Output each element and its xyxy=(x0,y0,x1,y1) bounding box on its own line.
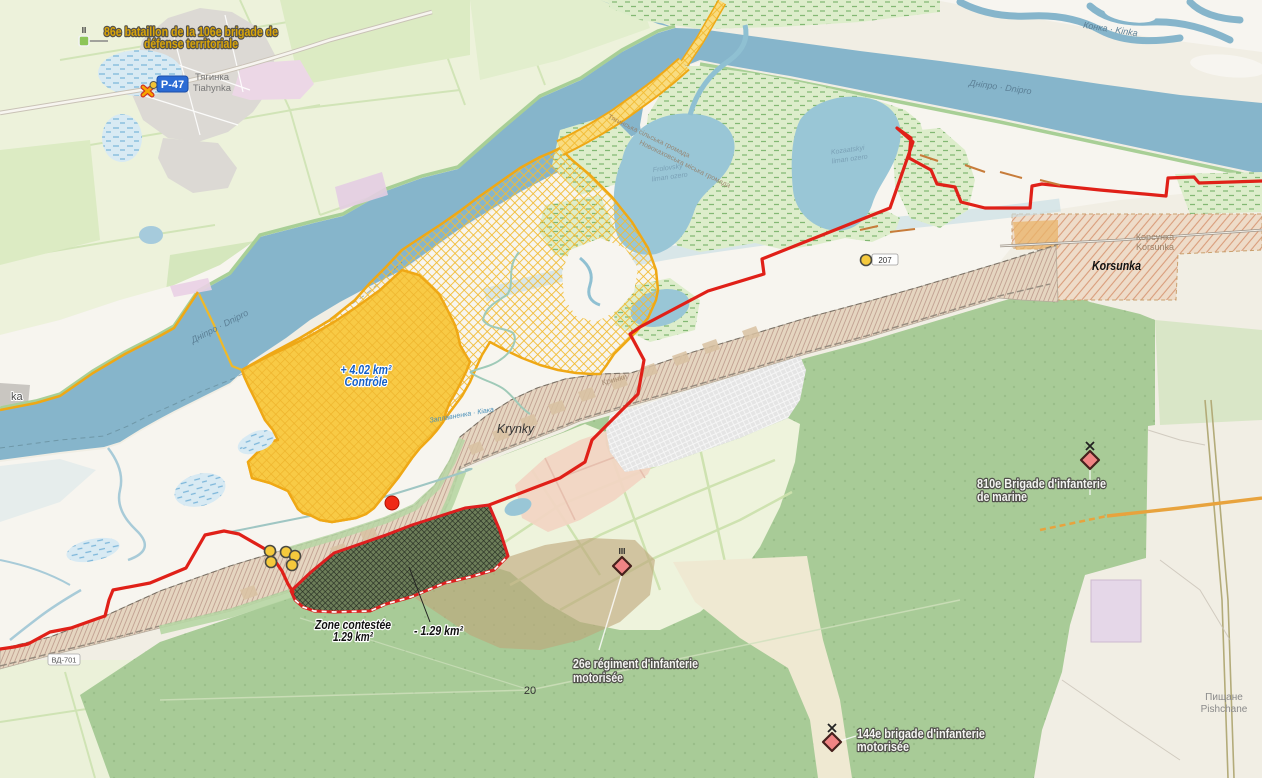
svg-text:26e régiment d'infanterie: 26e régiment d'infanterie xyxy=(573,657,698,671)
svg-text:144e brigade d'infanterie: 144e brigade d'infanterie xyxy=(857,727,985,741)
svg-text:Krynky: Krynky xyxy=(497,421,535,436)
svg-text:1.29 km²: 1.29 km² xyxy=(333,630,374,644)
svg-text:motorisée: motorisée xyxy=(857,740,909,754)
svg-text:ka: ka xyxy=(11,391,24,403)
svg-text:Пищане: Пищане xyxy=(1205,692,1243,703)
svg-text:de marine: de marine xyxy=(977,490,1027,504)
svg-text:Тягинка: Тягинка xyxy=(195,72,230,83)
svg-text:Korsunka: Korsunka xyxy=(1092,258,1141,273)
svg-text:Tiahynka: Tiahynka xyxy=(193,83,232,94)
svg-text:Korsunka: Korsunka xyxy=(1136,242,1174,252)
svg-text:207: 207 xyxy=(878,256,892,265)
svg-text:P-47: P-47 xyxy=(161,79,184,91)
svg-text:III: III xyxy=(619,547,626,556)
svg-text:20: 20 xyxy=(524,685,536,697)
svg-text:ВД-701: ВД-701 xyxy=(52,656,77,665)
svg-text:Pishchane: Pishchane xyxy=(1201,704,1248,715)
svg-text:Contrôle: Contrôle xyxy=(345,374,388,389)
svg-text:810e Brigade d'infanterie: 810e Brigade d'infanterie xyxy=(977,477,1106,491)
svg-text:défense territoriale: défense territoriale xyxy=(144,36,238,51)
svg-text:Корсунка: Корсунка xyxy=(1136,232,1174,242)
svg-text:motorisée: motorisée xyxy=(573,671,623,685)
svg-text:II: II xyxy=(82,26,86,35)
svg-text:- 1.29 km²: - 1.29 km² xyxy=(414,624,464,638)
